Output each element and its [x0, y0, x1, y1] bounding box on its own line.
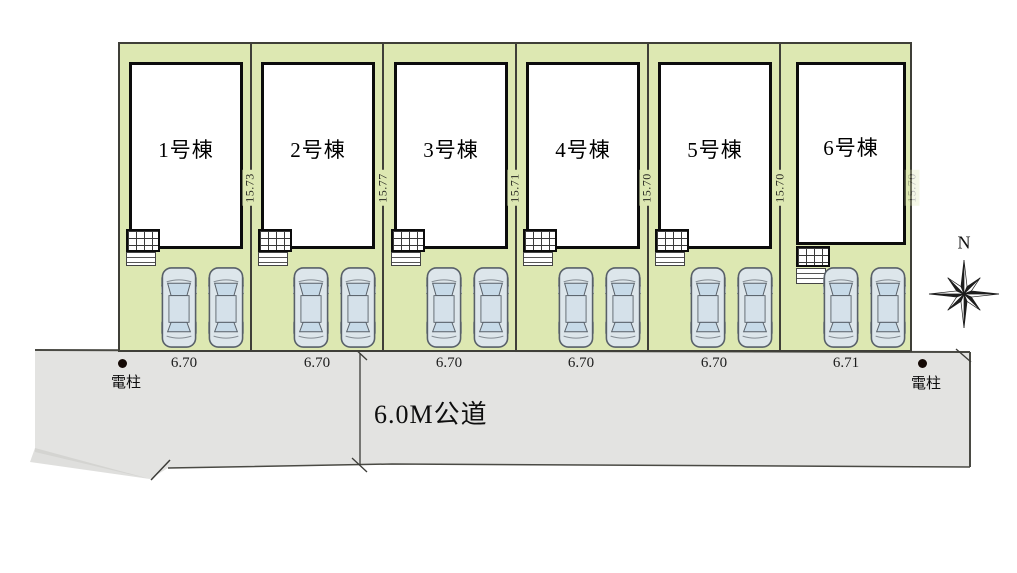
building-5: 5号棟 — [658, 62, 772, 249]
building-2-label: 2号棟 — [290, 134, 346, 164]
entrance-step — [391, 252, 421, 266]
car-icon — [208, 266, 244, 349]
building-2: 2号棟 — [261, 62, 375, 249]
car-icon — [605, 266, 641, 349]
utility-pole-icon — [918, 359, 927, 368]
depth-dimension-6: 15.70 — [905, 170, 920, 206]
building-6-label: 6号棟 — [823, 132, 879, 162]
frontage-dimension-2: 6.70 — [304, 355, 330, 372]
frontage-dimension-5: 6.70 — [701, 355, 727, 372]
lot-1: 1号棟 — [120, 44, 252, 350]
car-icon — [870, 266, 906, 349]
utility-pole-label-right: 電柱 — [911, 372, 941, 393]
building-1: 1号棟 — [129, 62, 243, 249]
lot-4: 4号棟 — [517, 44, 649, 350]
lot-6: 6号棟 — [782, 44, 914, 350]
car-icon — [737, 266, 773, 349]
lot-2: 2号棟 — [252, 44, 384, 350]
depth-dimension-3: 15.71 — [508, 170, 523, 206]
depth-dimension-4: 15.70 — [640, 170, 655, 206]
frontage-dimension-1: 6.70 — [171, 355, 197, 372]
entrance-porch — [391, 229, 425, 252]
utility-pole-icon — [118, 359, 127, 368]
entrance-porch — [796, 246, 830, 267]
building-1-label: 1号棟 — [158, 134, 214, 164]
entrance-step — [258, 252, 288, 266]
building-6: 6号棟 — [796, 62, 906, 245]
depth-dimension-2: 15.77 — [376, 170, 391, 206]
car-icon — [161, 266, 197, 349]
frontage-dimension-3: 6.70 — [436, 355, 462, 372]
entrance-step — [796, 268, 826, 284]
entrance-step — [655, 252, 685, 266]
compass-north-label: N — [958, 233, 971, 254]
car-icon — [426, 266, 462, 349]
entrance-step — [523, 252, 553, 266]
car-icon — [340, 266, 376, 349]
car-icon — [690, 266, 726, 349]
building-3-label: 3号棟 — [423, 134, 479, 164]
depth-dimension-1: 15.73 — [243, 170, 258, 206]
utility-pole-label-left: 電柱 — [111, 371, 141, 392]
lot-3: 3号棟 — [385, 44, 517, 350]
car-icon — [823, 266, 859, 349]
site-plan: 1号棟 2号棟 3号棟 4号棟 — [0, 0, 1017, 573]
entrance-porch — [523, 229, 557, 252]
car-icon — [473, 266, 509, 349]
depth-dimension-5: 15.70 — [773, 170, 788, 206]
frontage-dimension-4: 6.70 — [568, 355, 594, 372]
entrance-porch — [655, 229, 689, 252]
car-icon — [293, 266, 329, 349]
car-icon — [558, 266, 594, 349]
entrance-porch — [126, 229, 160, 252]
road-name-label: 6.0M公道 — [374, 394, 488, 431]
building-3: 3号棟 — [394, 62, 508, 249]
compass-rose-icon — [924, 252, 1004, 332]
entrance-porch — [258, 229, 292, 252]
building-5-label: 5号棟 — [687, 134, 743, 164]
entrance-step — [126, 252, 156, 266]
building-4: 4号棟 — [526, 62, 640, 249]
building-4-label: 4号棟 — [555, 134, 611, 164]
lot-5: 5号棟 — [649, 44, 781, 350]
frontage-dimension-6: 6.71 — [833, 355, 859, 372]
